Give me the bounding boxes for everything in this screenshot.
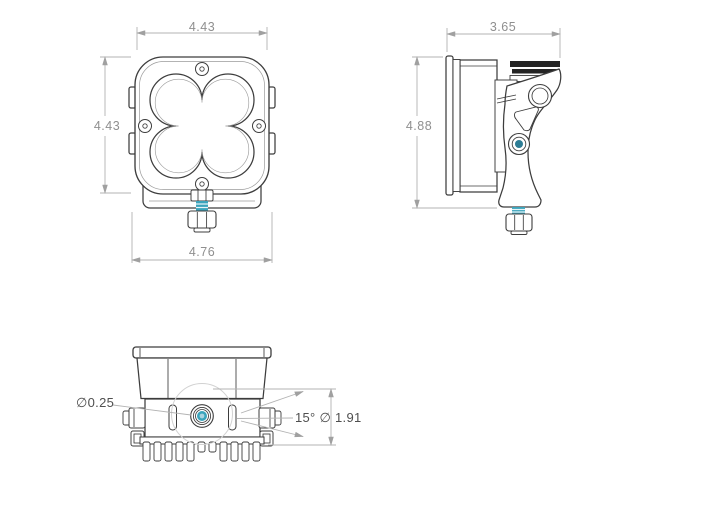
- heatsink-fins: [140, 437, 264, 461]
- center-bolt: [191, 405, 214, 428]
- side-body: [460, 60, 497, 192]
- side-bolt-thread: [512, 207, 525, 214]
- dim-side-depth: 3.65: [447, 20, 560, 58]
- dim-front-overall-width-label: 4.76: [189, 245, 215, 259]
- mounting-slot-left: [169, 405, 177, 430]
- side-view: 3.65 4.88: [406, 20, 561, 235]
- dim-front-height-label: 4.43: [94, 119, 120, 133]
- side-lens-plate: [446, 56, 453, 195]
- bezel-screw-left: [139, 120, 152, 133]
- callout-angle-bolt-circle-label: 15° ∅ 1.91: [295, 410, 362, 425]
- engineering-drawing: 4.43 4.43 4.76: [0, 0, 720, 520]
- side-lens-bezel: [453, 60, 460, 192]
- front-bolt-nut: [188, 211, 216, 228]
- bezel-screw-top: [196, 63, 209, 76]
- dim-side-depth-label: 3.65: [490, 20, 516, 34]
- drawing-page: 4.43 4.43 4.76: [0, 0, 720, 520]
- bezel-screw-bottom: [196, 178, 209, 191]
- side-pivot-knob-upper: [529, 85, 552, 108]
- front-view: 4.43 4.43 4.76: [94, 20, 275, 263]
- front-mounting-bolt: [188, 190, 216, 232]
- front-bolt-thread: [196, 201, 208, 211]
- callout-hole-diameter-label: ∅0.25: [76, 395, 114, 410]
- dim-side-height-label: 4.88: [406, 119, 432, 133]
- bottom-side-bolt-left: [123, 408, 145, 428]
- side-bolt-nut: [506, 214, 532, 231]
- dim-front-width: 4.43: [137, 20, 267, 50]
- bottom-body-taper: [137, 358, 267, 399]
- dim-front-height: 4.43: [94, 57, 131, 193]
- dim-front-width-label: 4.43: [189, 20, 215, 34]
- bottom-lens-flange: [133, 347, 271, 358]
- side-mounting-bolt: [506, 207, 532, 235]
- side-fin-dark-1: [510, 61, 560, 67]
- bezel-screw-right: [253, 120, 266, 133]
- bottom-view: ∅0.25 15° ∅ 1.91: [76, 347, 362, 461]
- side-pivot-knob-lower: [509, 134, 530, 155]
